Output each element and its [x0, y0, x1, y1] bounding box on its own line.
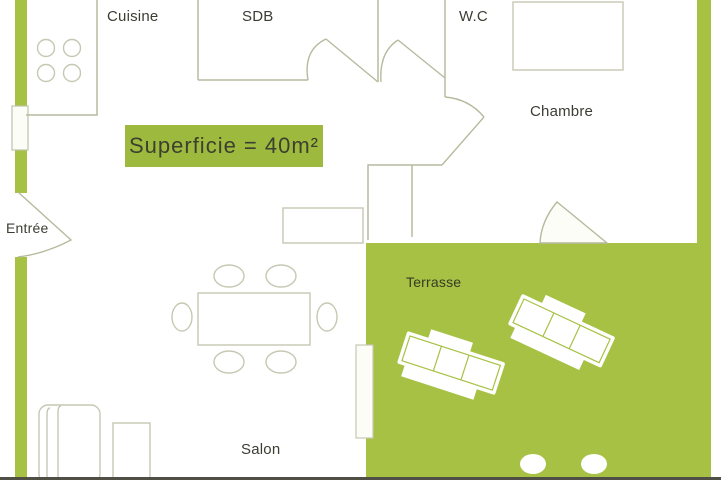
left-wall-upper	[15, 0, 27, 108]
side-table-icon	[113, 423, 150, 480]
window-icon-terrace	[356, 345, 373, 438]
floor-plan-drawing	[0, 0, 721, 480]
room-label-entrance: Entrée	[6, 221, 48, 235]
bed-icon	[513, 2, 623, 70]
left-wall-lower	[15, 257, 27, 480]
interior-walls	[26, 0, 445, 240]
door-swing-icon-bathroom	[307, 39, 378, 82]
left-wall-mid	[15, 150, 27, 193]
door-swing-icon-terrace	[540, 202, 607, 243]
door-swing-icon-toilet	[381, 40, 445, 82]
sideboard-icon	[283, 208, 363, 243]
room-label-kitchen: Cuisine	[107, 9, 158, 24]
room-label-living: Salon	[241, 442, 280, 457]
kitchen-wall	[26, 0, 97, 115]
floor-plan: Cuisine SDB W.C Chambre Entrée Salon Ter…	[0, 0, 721, 480]
stool-icon	[581, 454, 607, 474]
stove-icon	[38, 40, 81, 82]
area-badge: Superficie = 40m²	[125, 125, 323, 167]
room-label-toilet: W.C	[459, 9, 488, 24]
room-label-bedroom: Chambre	[530, 104, 593, 119]
room-label-bathroom: SDB	[242, 9, 273, 24]
door-swing-icon-bedroom	[442, 97, 484, 165]
window-icon	[12, 106, 28, 150]
living-closet-wall	[368, 165, 442, 240]
sofa-icon	[39, 405, 100, 480]
stool-icon	[520, 454, 546, 474]
dining-chair-icon	[172, 265, 337, 373]
dining-table-icon	[198, 293, 310, 345]
right-wall	[697, 0, 711, 245]
room-label-terrace: Terrasse	[406, 275, 461, 289]
